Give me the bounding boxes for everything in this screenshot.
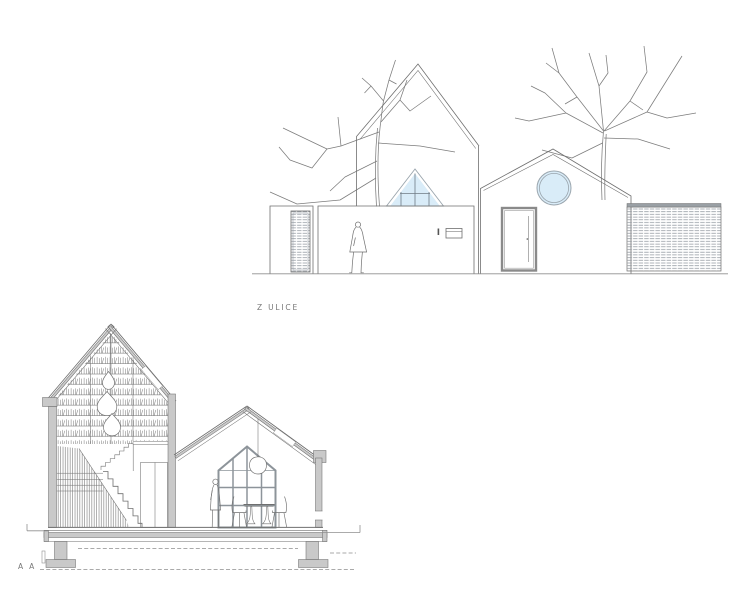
eave-block-left <box>43 398 58 407</box>
street-elevation-drawing <box>252 46 728 274</box>
floor-slab <box>44 527 327 541</box>
triangular-gable-window <box>387 169 444 206</box>
mailbox <box>446 229 462 239</box>
section-caption: A A <box>18 562 36 571</box>
architectural-drawing-sheet: Z ULICE A A <box>0 0 750 602</box>
intercom <box>438 229 440 236</box>
tall-house <box>357 64 480 274</box>
understair-cabinet <box>141 463 168 528</box>
walking-person-figure <box>349 222 366 273</box>
foundation-pads <box>42 551 328 568</box>
section-left-wall <box>49 407 57 528</box>
garden-wall <box>270 206 474 274</box>
dining-chairs <box>232 497 287 528</box>
cross-section-drawing <box>27 324 360 570</box>
main-wall <box>318 206 474 274</box>
entry-door <box>502 208 536 271</box>
upper-flight <box>101 443 133 470</box>
foundation-posts <box>55 542 319 560</box>
dining-table <box>244 505 275 524</box>
section-mid-wall <box>168 394 176 528</box>
rooflight-low <box>273 428 295 446</box>
mezzanine-floor <box>133 442 168 445</box>
section-right-wall <box>315 458 323 528</box>
sliding-gate <box>627 204 721 272</box>
stair <box>57 443 142 527</box>
round-window <box>537 171 571 205</box>
low-roof <box>174 406 326 465</box>
low-house <box>481 149 632 274</box>
pedestrian-gate <box>291 211 310 272</box>
drawing-linework <box>0 0 750 602</box>
elevation-caption: Z ULICE <box>257 303 299 312</box>
